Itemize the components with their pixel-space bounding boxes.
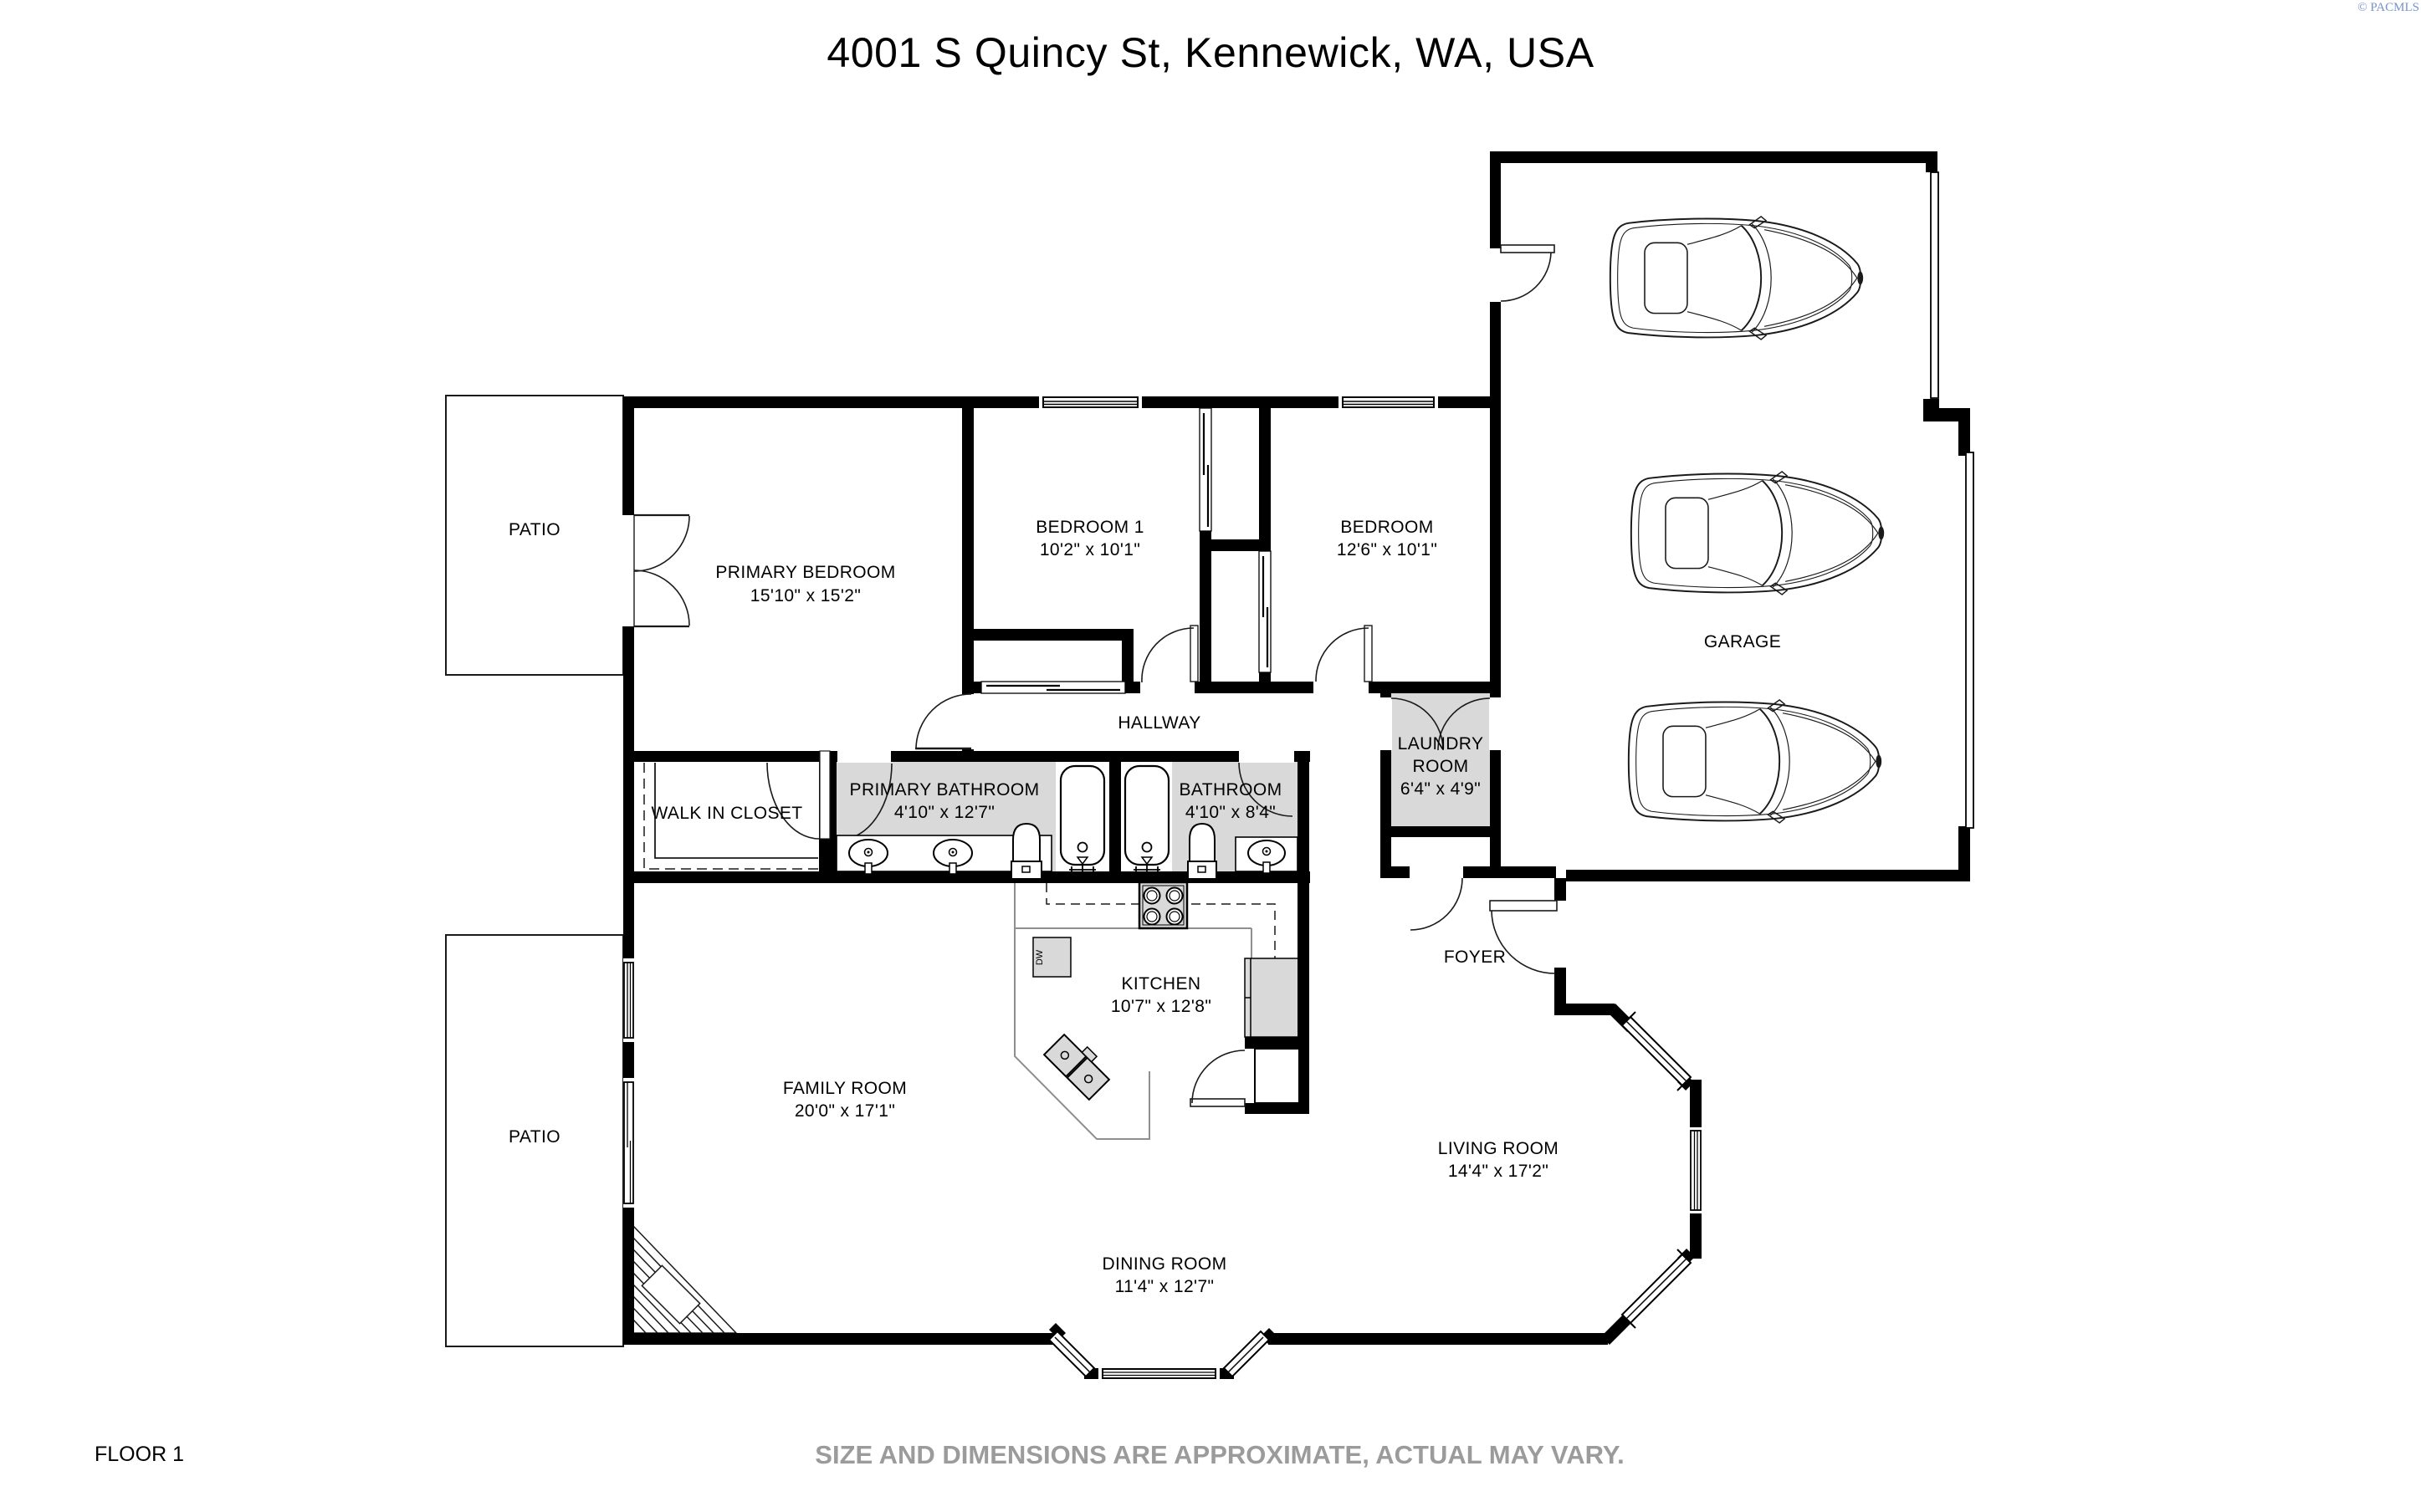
svg-text:© PACMLS: © PACMLS bbox=[2357, 1, 2419, 14]
svg-text:15'10" x 15'2": 15'10" x 15'2" bbox=[750, 586, 861, 605]
svg-text:WALK IN CLOSET: WALK IN CLOSET bbox=[651, 804, 802, 823]
svg-text:GARAGE: GARAGE bbox=[1704, 632, 1781, 651]
svg-text:HALLWAY: HALLWAY bbox=[1118, 713, 1200, 733]
svg-text:FOYER: FOYER bbox=[1444, 948, 1506, 967]
svg-text:SIZE AND DIMENSIONS ARE APPROX: SIZE AND DIMENSIONS ARE APPROXIMATE, ACT… bbox=[815, 1440, 1624, 1469]
svg-text:DW: DW bbox=[1035, 949, 1045, 965]
svg-text:PRIMARY BATHROOM: PRIMARY BATHROOM bbox=[850, 780, 1040, 799]
svg-text:FLOOR 1: FLOOR 1 bbox=[95, 1443, 184, 1466]
svg-text:BEDROOM: BEDROOM bbox=[1340, 518, 1433, 537]
svg-text:4001 S Quincy St, Kennewick, W: 4001 S Quincy St, Kennewick, WA, USA bbox=[827, 29, 1594, 76]
svg-text:BATHROOM: BATHROOM bbox=[1180, 780, 1282, 799]
svg-text:6'4" x 4'9": 6'4" x 4'9" bbox=[1400, 779, 1481, 799]
svg-text:14'4" x 17'2": 14'4" x 17'2" bbox=[1448, 1162, 1548, 1181]
svg-text:PATIO: PATIO bbox=[509, 520, 560, 539]
svg-text:DINING ROOM: DINING ROOM bbox=[1102, 1254, 1226, 1274]
svg-text:LIVING ROOM: LIVING ROOM bbox=[1438, 1139, 1559, 1158]
svg-text:20'0" x 17'1": 20'0" x 17'1" bbox=[795, 1101, 895, 1121]
svg-text:11'4" x 12'7": 11'4" x 12'7" bbox=[1115, 1277, 1215, 1296]
svg-text:10'7" x 12'8": 10'7" x 12'8" bbox=[1111, 997, 1211, 1016]
svg-text:PRIMARY BEDROOM: PRIMARY BEDROOM bbox=[715, 563, 895, 582]
svg-text:12'6" x 10'1": 12'6" x 10'1" bbox=[1337, 540, 1437, 559]
svg-text:BEDROOM 1: BEDROOM 1 bbox=[1036, 518, 1144, 537]
svg-text:10'2" x 10'1": 10'2" x 10'1" bbox=[1040, 540, 1140, 559]
svg-text:KITCHEN: KITCHEN bbox=[1122, 974, 1201, 994]
svg-text:FAMILY ROOM: FAMILY ROOM bbox=[783, 1079, 907, 1098]
svg-text:PATIO: PATIO bbox=[509, 1127, 560, 1147]
svg-text:4'10" x 8'4": 4'10" x 8'4" bbox=[1185, 803, 1276, 822]
svg-text:4'10" x 12'7": 4'10" x 12'7" bbox=[894, 803, 995, 822]
svg-text:LAUNDRY: LAUNDRY bbox=[1398, 734, 1484, 753]
svg-text:ROOM: ROOM bbox=[1413, 757, 1469, 776]
